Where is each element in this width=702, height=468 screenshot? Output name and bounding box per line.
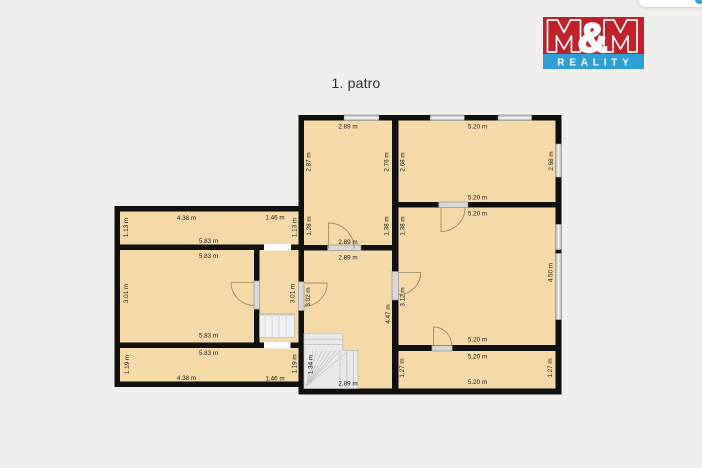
- svg-text:2.68 m: 2.68 m: [548, 151, 555, 170]
- svg-text:5.83 m: 5.83 m: [199, 333, 218, 340]
- svg-text:5.20 m: 5.20 m: [468, 195, 487, 202]
- svg-text:3.02 m: 3.02 m: [305, 287, 312, 306]
- svg-text:3.01 m: 3.01 m: [123, 284, 130, 303]
- svg-text:5.20 m: 5.20 m: [468, 337, 487, 344]
- svg-text:1.19 m: 1.19 m: [292, 354, 299, 373]
- svg-text:1.34 m: 1.34 m: [308, 355, 315, 374]
- svg-text:4.38 m: 4.38 m: [177, 375, 196, 382]
- svg-text:5.20 m: 5.20 m: [468, 354, 487, 361]
- svg-text:1.13 m: 1.13 m: [123, 218, 130, 237]
- svg-text:1.13 m: 1.13 m: [292, 218, 299, 237]
- svg-text:2.87 m: 2.87 m: [306, 152, 313, 171]
- svg-text:5.20 m: 5.20 m: [468, 379, 487, 386]
- svg-text:1.38 m: 1.38 m: [400, 216, 407, 235]
- svg-text:1.27 m: 1.27 m: [547, 358, 554, 377]
- svg-text:2.68 m: 2.68 m: [400, 152, 407, 171]
- svg-text:1.19 m: 1.19 m: [124, 355, 131, 374]
- svg-text:2.89 m: 2.89 m: [338, 124, 357, 131]
- svg-text:3.12 m: 3.12 m: [400, 287, 407, 306]
- svg-text:2.76 m: 2.76 m: [384, 152, 391, 171]
- svg-text:5.20 m: 5.20 m: [468, 124, 487, 131]
- svg-text:1.28 m: 1.28 m: [306, 216, 313, 235]
- svg-text:2.89 m: 2.89 m: [338, 255, 357, 262]
- svg-text:2.89 m: 2.89 m: [338, 239, 357, 246]
- svg-text:5.83 m: 5.83 m: [199, 253, 218, 260]
- svg-text:3.01 m: 3.01 m: [290, 284, 297, 303]
- svg-text:2.89 m: 2.89 m: [338, 381, 357, 388]
- svg-text:5.83 m: 5.83 m: [199, 350, 218, 357]
- svg-text:1.38 m: 1.38 m: [384, 216, 391, 235]
- svg-text:4.50 m: 4.50 m: [548, 263, 555, 282]
- svg-text:1.46 m: 1.46 m: [265, 215, 284, 222]
- svg-text:4.47 m: 4.47 m: [385, 304, 392, 323]
- svg-text:5.83 m: 5.83 m: [199, 238, 218, 245]
- svg-text:1.27 m: 1.27 m: [399, 358, 406, 377]
- svg-text:4.38 m: 4.38 m: [177, 215, 196, 222]
- svg-text:5.20 m: 5.20 m: [468, 211, 487, 218]
- svg-text:1.46 m: 1.46 m: [265, 376, 284, 383]
